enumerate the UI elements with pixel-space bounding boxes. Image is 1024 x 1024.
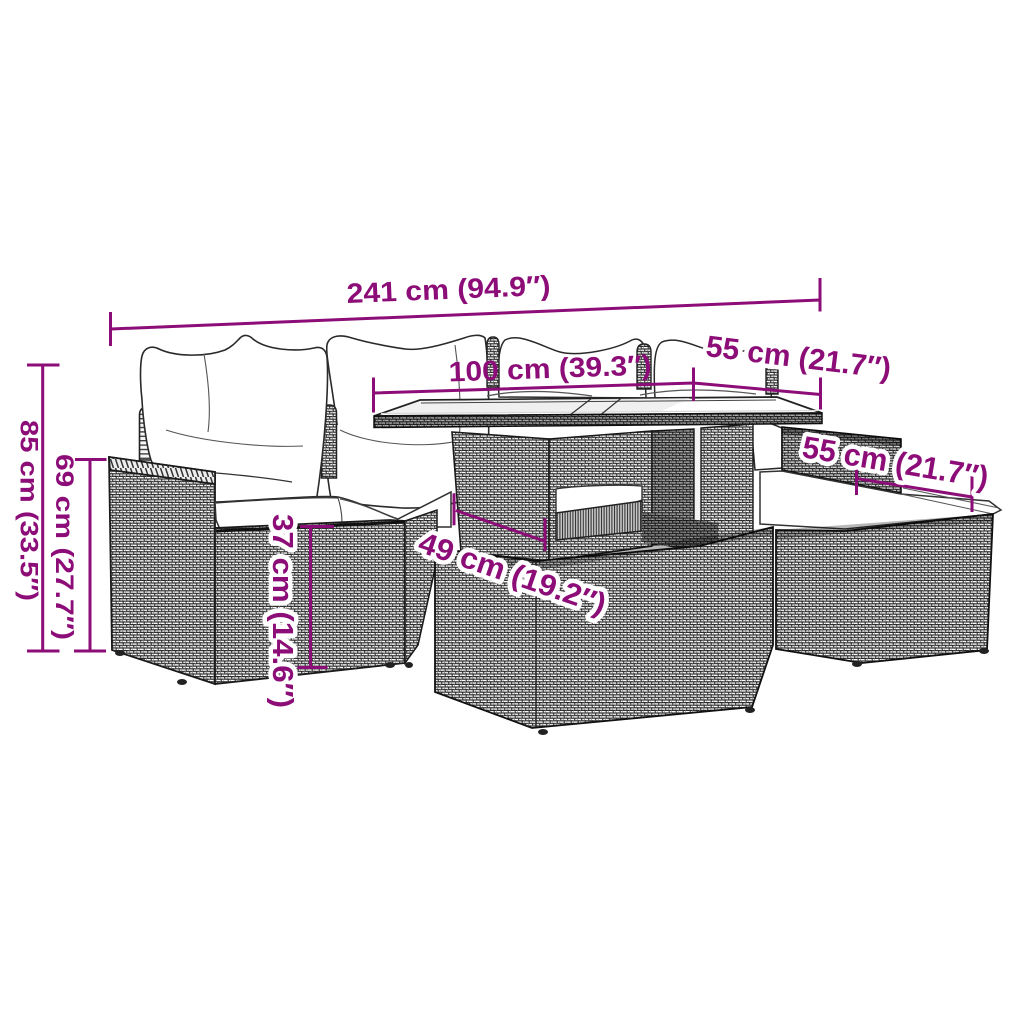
svg-text:37 cm (14.6″): 37 cm (14.6″) [266, 514, 298, 708]
svg-text:85 cm (33.5″): 85 cm (33.5″) [15, 420, 43, 601]
svg-text:69 cm (27.7″): 69 cm (27.7″) [50, 454, 78, 640]
